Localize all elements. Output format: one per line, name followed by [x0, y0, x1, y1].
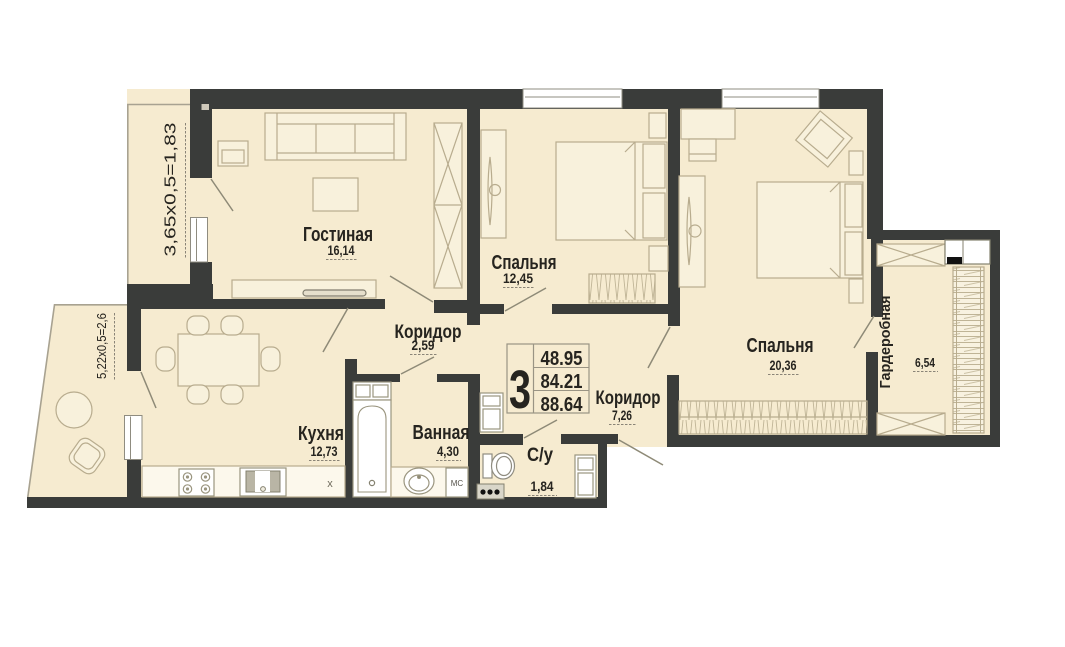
svg-text:20,36: 20,36 [770, 358, 797, 373]
svg-text:3,65х0,5=1,83: 3,65х0,5=1,83 [163, 123, 180, 257]
svg-text:6,54: 6,54 [915, 355, 936, 370]
svg-text:Коридор: Коридор [596, 388, 661, 409]
svg-text:Кухня: Кухня [298, 423, 344, 445]
svg-text:МС: МС [451, 479, 464, 488]
svg-text:84.21: 84.21 [541, 370, 583, 393]
svg-text:4,30: 4,30 [437, 443, 459, 459]
svg-text:Гардеробная: Гардеробная [877, 296, 894, 389]
svg-text:x: x [327, 478, 333, 490]
svg-text:12,45: 12,45 [503, 270, 533, 286]
svg-text:1,84: 1,84 [531, 479, 554, 494]
svg-text:5,22х0,5=2,6: 5,22х0,5=2,6 [94, 313, 109, 379]
svg-text:2,59: 2,59 [412, 338, 435, 353]
svg-text:88.64: 88.64 [541, 393, 583, 416]
svg-text:7,26: 7,26 [612, 408, 632, 423]
svg-text:Спальня: Спальня [747, 335, 814, 357]
svg-text:12,73: 12,73 [311, 443, 338, 459]
svg-text:16,14: 16,14 [328, 242, 355, 258]
svg-text:С/у: С/у [527, 445, 553, 466]
svg-text:Ванная: Ванная [413, 422, 470, 444]
svg-text:3: 3 [509, 360, 531, 420]
svg-text:48.95: 48.95 [541, 347, 583, 370]
